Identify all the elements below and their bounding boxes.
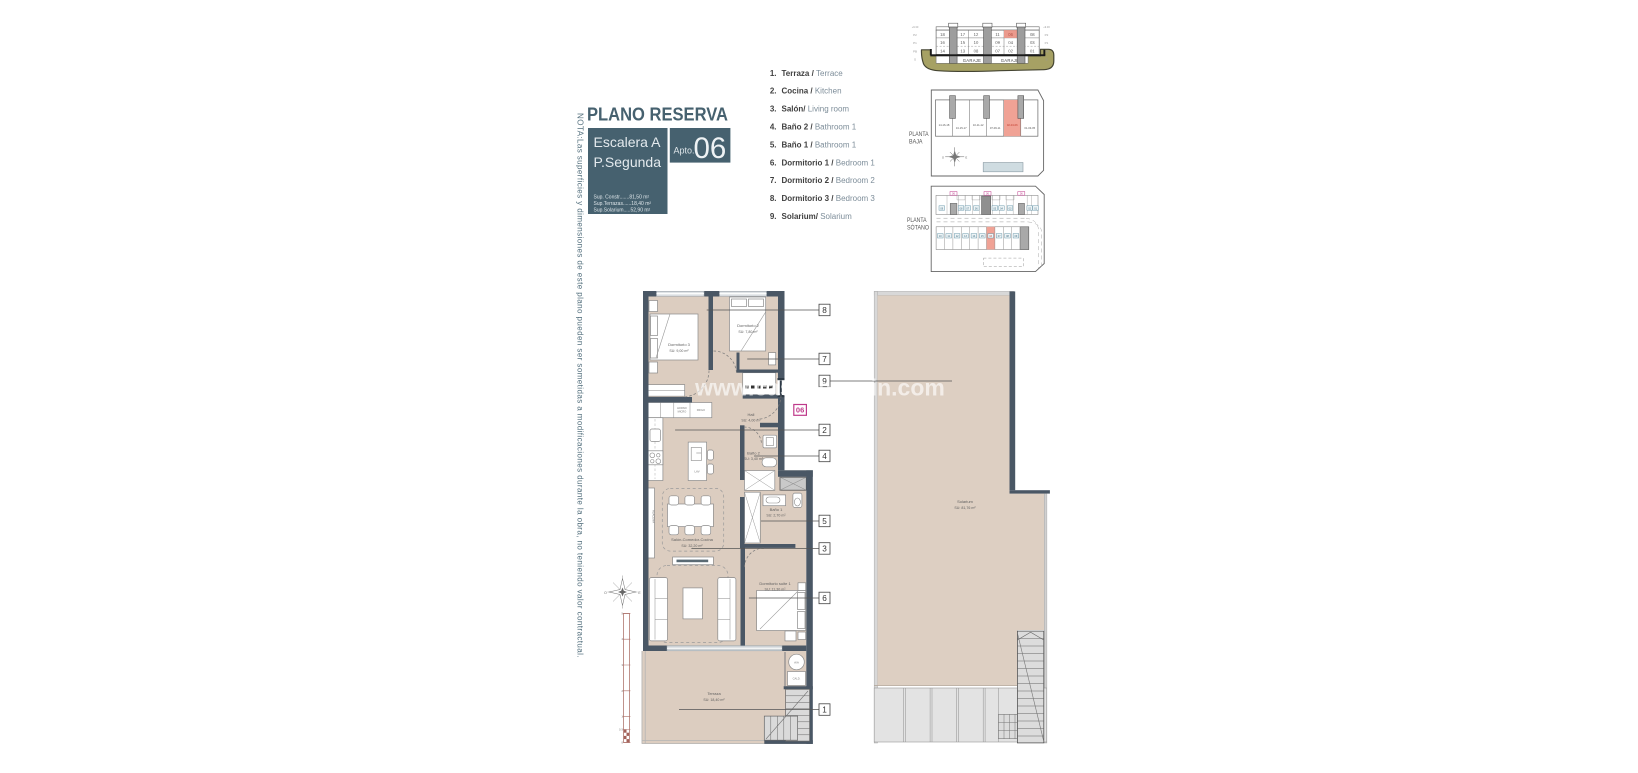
svg-text:PLANO RESERVA: PLANO RESERVA: [587, 104, 728, 125]
svg-text:07-09-11: 07-09-11: [990, 126, 1001, 130]
svg-text:Cocina / Kitchen: Cocina / Kitchen: [782, 87, 842, 96]
svg-text:Solarium: Solarium: [957, 499, 973, 504]
svg-text:FRIGO: FRIGO: [697, 408, 705, 412]
svg-text:8: 8: [822, 306, 827, 315]
svg-text:1.: 1.: [770, 69, 777, 78]
svg-text:15: 15: [960, 40, 965, 45]
svg-text:02-04-06: 02-04-06: [1007, 123, 1018, 127]
svg-text:SU: 81,76 m²: SU: 81,76 m²: [954, 506, 976, 510]
svg-text:MICRO: MICRO: [678, 409, 687, 413]
svg-text:5.: 5.: [770, 140, 777, 149]
svg-text:06: 06: [1008, 32, 1013, 37]
svg-text:A/A: A/A: [794, 661, 799, 665]
svg-text:07: 07: [995, 48, 1000, 53]
svg-text:Dormitorio 2 / Bedroom 2: Dormitorio 2 / Bedroom 2: [782, 176, 876, 185]
svg-text:Baño 1 / Bathroom 1: Baño 1 / Bathroom 1: [782, 140, 857, 149]
svg-text:17: 17: [960, 32, 965, 37]
svg-text:08: 08: [1030, 32, 1035, 37]
svg-text:PLANTA: PLANTA: [909, 131, 929, 138]
svg-text:12: 12: [974, 32, 979, 37]
svg-text:11: 11: [995, 32, 1000, 37]
svg-text:www.casasespain.com: www.casasespain.com: [694, 375, 945, 401]
svg-text:10: 10: [974, 40, 979, 45]
svg-text:SU: 11,30 m²: SU: 11,30 m²: [765, 588, 787, 592]
svg-text:S: S: [914, 58, 916, 62]
svg-text:10-11-12: 10-11-12: [973, 123, 984, 127]
svg-text:7.: 7.: [770, 176, 777, 185]
svg-text:9.: 9.: [770, 212, 777, 221]
svg-text:Hall: Hall: [748, 412, 755, 417]
svg-text:HORNO: HORNO: [677, 406, 687, 410]
svg-text:ALACENA: ALACENA: [651, 510, 655, 523]
svg-text:P1: P1: [913, 41, 917, 45]
svg-text:13-15-17: 13-15-17: [956, 126, 967, 130]
svg-text:7: 7: [822, 355, 827, 364]
svg-text:4: 4: [822, 452, 827, 461]
svg-text:06: 06: [694, 132, 727, 165]
svg-text:P1: P1: [1045, 41, 1049, 45]
svg-text:Dormitorio 3 / Bedroom 3: Dormitorio 3 / Bedroom 3: [782, 194, 876, 203]
svg-text:4.: 4.: [770, 123, 777, 132]
svg-text:P2: P2: [1045, 33, 1049, 37]
svg-text:2.: 2.: [770, 87, 777, 96]
svg-text:Dormitorio suite 1: Dormitorio suite 1: [759, 581, 791, 586]
svg-text:P.Segunda: P.Segunda: [594, 154, 662, 170]
svg-text:SU: 18,40 m²: SU: 18,40 m²: [703, 698, 725, 702]
svg-text:Dormitorio 1 / Bedroom 1: Dormitorio 1 / Bedroom 1: [782, 158, 876, 167]
svg-text:Escalera A: Escalera A: [594, 134, 662, 150]
svg-text:13: 13: [960, 48, 965, 53]
svg-text:P2: P2: [913, 33, 917, 37]
svg-text:18: 18: [940, 32, 945, 37]
svg-text:SÓTANO: SÓTANO: [907, 225, 929, 232]
svg-text:16: 16: [940, 40, 945, 45]
svg-text:06: 06: [796, 406, 804, 415]
svg-text:Salón/ Living room: Salón/ Living room: [782, 105, 850, 114]
svg-text:PB: PB: [913, 49, 917, 53]
svg-text:SU: 9,00 m²: SU: 9,00 m²: [669, 349, 689, 353]
svg-text:E: E: [965, 155, 967, 159]
svg-text:+9.30: +9.30: [912, 25, 919, 29]
svg-text:14-16-18: 14-16-18: [939, 123, 950, 127]
svg-text:Terraza / Terrace: Terraza / Terrace: [782, 69, 844, 78]
svg-text:SU: 4,00 m²: SU: 4,00 m²: [741, 419, 761, 423]
svg-text:2: 2: [822, 426, 827, 435]
svg-text:3.: 3.: [770, 105, 777, 114]
svg-text:Solarium/ Solarium: Solarium/ Solarium: [782, 212, 853, 221]
svg-text:NOTA:Las superficies y dimensi: NOTA:Las superficies y dimensiones de es…: [576, 113, 585, 658]
svg-text:Sup. Constr.......81,50 m²: Sup. Constr.......81,50 m²: [594, 195, 650, 201]
svg-text:Apto.: Apto.: [674, 146, 695, 156]
svg-text:Baño 2: Baño 2: [747, 451, 760, 456]
svg-text:3: 3: [822, 545, 827, 554]
svg-text:O: O: [604, 591, 607, 595]
svg-text:04: 04: [1008, 40, 1013, 45]
svg-text:BAJA: BAJA: [909, 138, 923, 145]
svg-text:Sup.Terrazas......18,40 m²: Sup.Terrazas......18,40 m²: [594, 201, 652, 207]
svg-text:GARAJE: GARAJE: [963, 58, 982, 63]
svg-text:09: 09: [995, 40, 1000, 45]
svg-text:LAV: LAV: [695, 470, 700, 474]
svg-text:Terraza: Terraza: [707, 691, 721, 696]
svg-text:5: 5: [822, 517, 827, 526]
svg-text:GARAJE: GARAJE: [1001, 58, 1020, 63]
svg-text:1: 1: [822, 706, 827, 715]
svg-text:Dormitorio 3: Dormitorio 3: [668, 342, 691, 347]
svg-text:Salón-Comedor-Cocina: Salón-Comedor-Cocina: [671, 537, 714, 542]
svg-text:Baño 1: Baño 1: [770, 507, 783, 512]
svg-text:01: 01: [1030, 48, 1035, 53]
svg-text:8.: 8.: [770, 194, 777, 203]
svg-text:SU: 7,80 m²: SU: 7,80 m²: [738, 330, 758, 334]
svg-text:+9.30: +9.30: [1043, 25, 1050, 29]
svg-text:08: 08: [974, 48, 979, 53]
svg-text:02: 02: [1008, 48, 1013, 53]
svg-text:6.: 6.: [770, 158, 777, 167]
svg-text:Baño 2 / Bathroom 1: Baño 2 / Bathroom 1: [782, 123, 857, 132]
svg-text:PLANTA: PLANTA: [907, 217, 927, 224]
svg-text:6: 6: [822, 594, 827, 603]
svg-text:SU: 32,20 m²: SU: 32,20 m²: [681, 544, 703, 548]
svg-text:SU: 2,70 m²: SU: 2,70 m²: [766, 514, 786, 518]
svg-text:Sup.Solarium.....52,90 m²: Sup.Solarium.....52,90 m²: [594, 208, 651, 214]
svg-text:0.5: 0.5: [619, 728, 624, 732]
svg-text:Dormitorio 2: Dormitorio 2: [737, 323, 760, 328]
svg-text:01-03-05: 01-03-05: [1024, 126, 1035, 130]
svg-text:03: 03: [1030, 40, 1035, 45]
svg-text:S: S: [1045, 58, 1047, 62]
svg-text:SU: 3,40 m²: SU: 3,40 m²: [744, 457, 764, 461]
svg-text:14: 14: [940, 48, 945, 53]
svg-text:CALD.: CALD.: [793, 677, 801, 681]
